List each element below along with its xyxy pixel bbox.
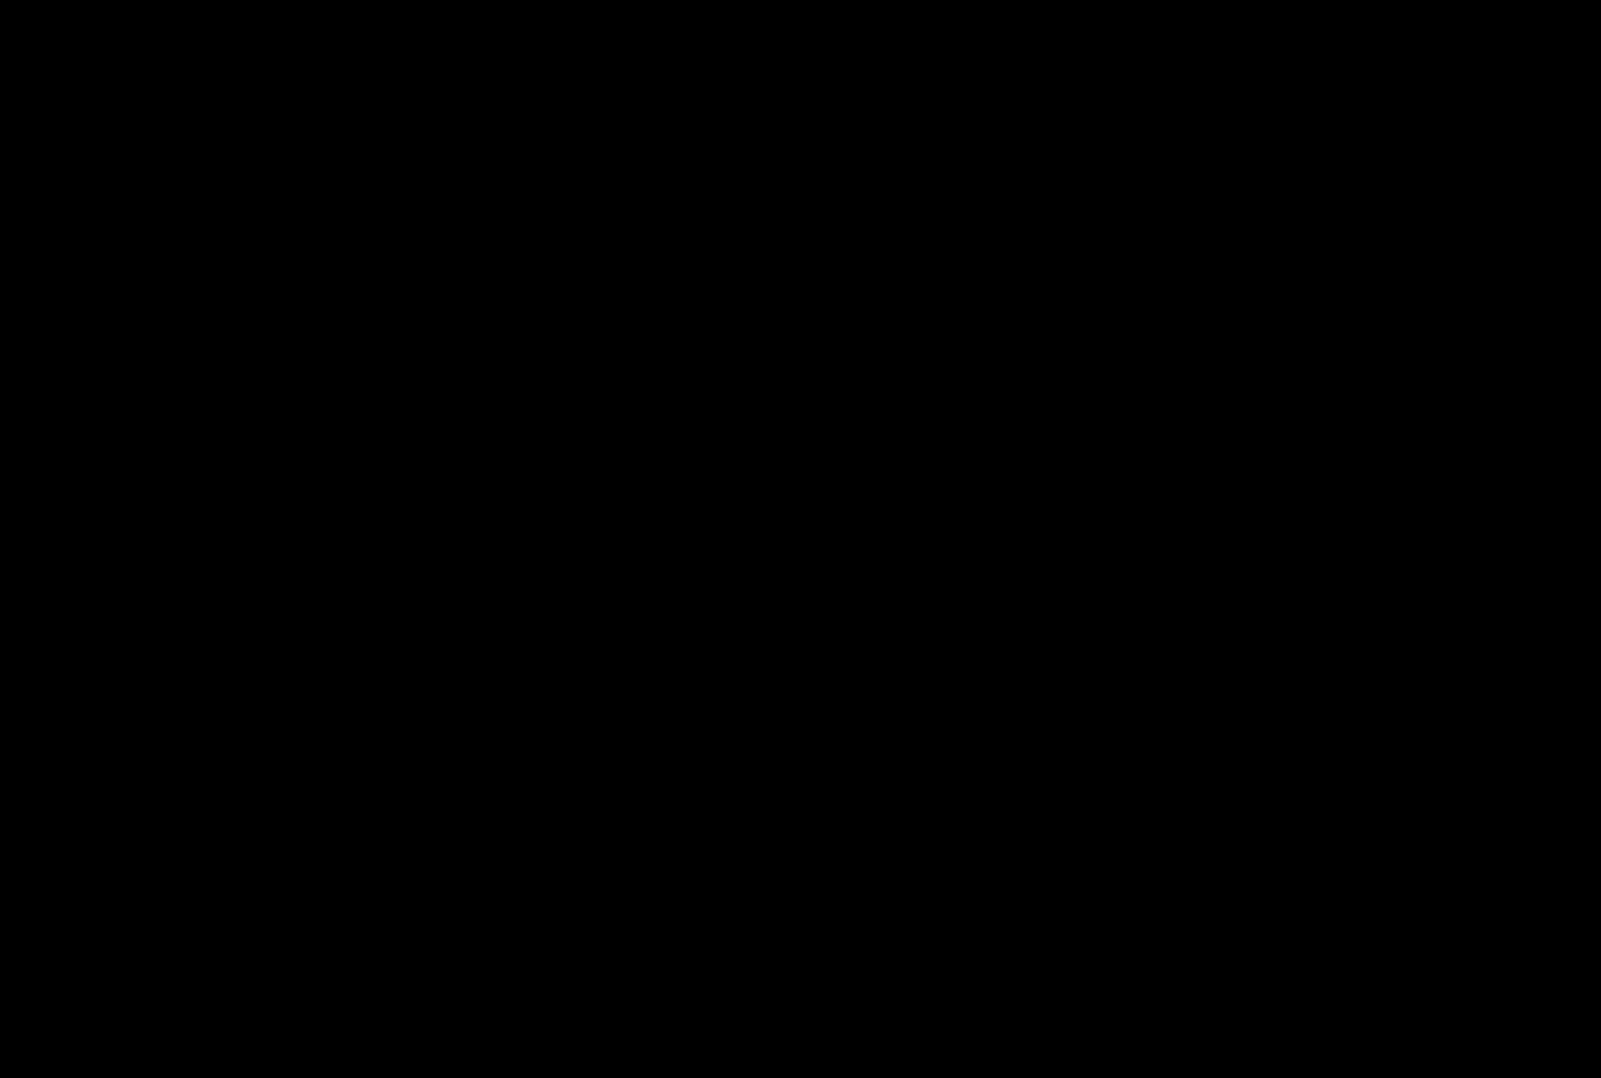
background (0, 0, 1601, 1078)
illustration-stage (0, 0, 1601, 1078)
racecourse-illustration (0, 0, 1601, 1078)
